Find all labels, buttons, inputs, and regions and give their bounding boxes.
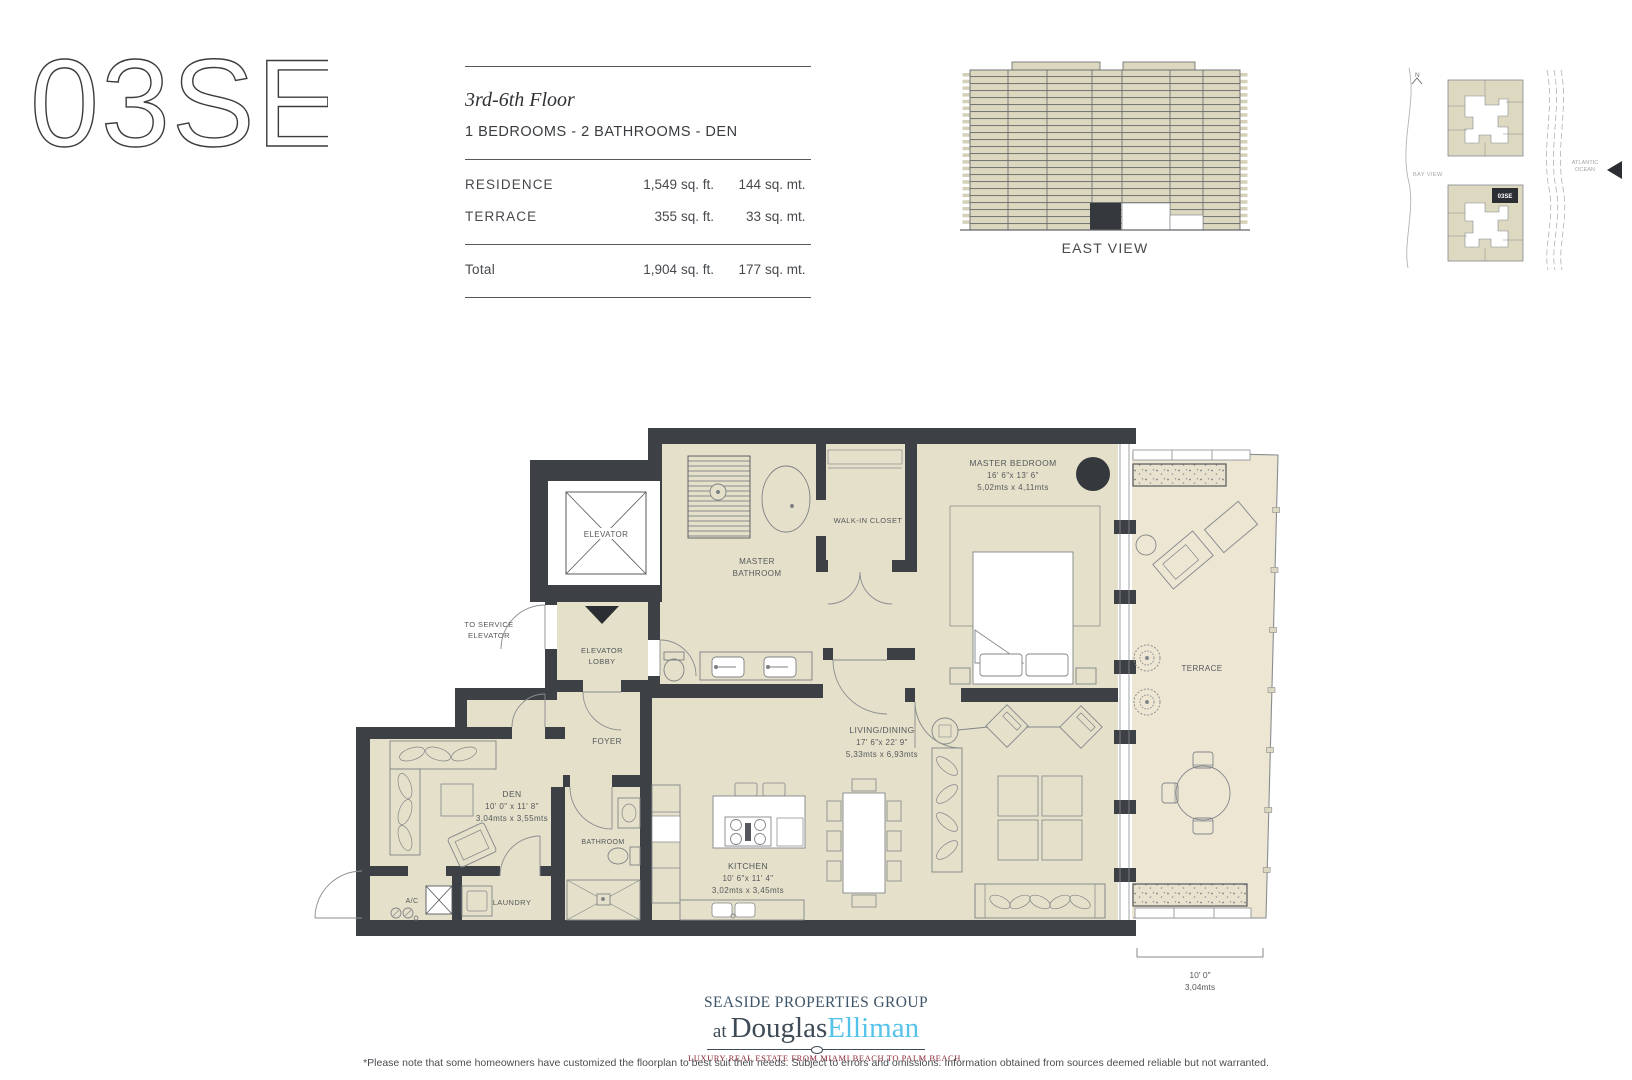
- terrace-dim-imperial: 10' 0": [1189, 970, 1210, 980]
- master-bedroom-dim-imperial: 16' 6"x 13' 6": [987, 471, 1039, 480]
- pillow-icon: [1026, 654, 1068, 676]
- laundry-label: LAUNDRY: [493, 898, 532, 907]
- brand-at: at: [713, 1021, 727, 1042]
- planter-icon: [1133, 464, 1226, 486]
- master-bathroom-label-2: BATHROOM: [733, 569, 782, 578]
- fridge-icon: [652, 816, 680, 842]
- elevator-lobby-label-2: LOBBY: [588, 657, 615, 666]
- elevator-lobby-label-1: ELEVATOR: [581, 646, 623, 655]
- to-service-label-1: TO SERVICE: [464, 620, 513, 629]
- terrace-rail: [1135, 908, 1251, 918]
- planter-icon: [1133, 884, 1247, 906]
- living-dining-dim-imperial: 17' 6"x 22' 9": [856, 738, 908, 747]
- den-label: DEN: [502, 789, 521, 799]
- ac-label: A/C: [406, 898, 419, 905]
- master-bathroom-label-1: MASTER: [739, 557, 775, 566]
- foyer-label: FOYER: [592, 737, 622, 746]
- den-dim-imperial: 10' 0" x 11' 8": [485, 802, 539, 811]
- bathtub-icon: [762, 466, 810, 532]
- terrace-dim-metric: 3,04mts: [1185, 982, 1215, 992]
- window-wall: [1120, 444, 1129, 920]
- room-floor-fills: [368, 444, 1278, 920]
- to-service-label-2: ELEVATOR: [468, 631, 510, 640]
- bathroom-label: BATHROOM: [581, 839, 624, 846]
- kitchen-dim-imperial: 10' 6"x 11' 4": [722, 874, 773, 883]
- kitchen-label: KITCHEN: [728, 861, 768, 871]
- living-dining-label: LIVING/DINING: [849, 725, 914, 735]
- master-bedroom-label: MASTER BEDROOM: [969, 458, 1056, 468]
- elevator-label: ELEVATOR: [584, 530, 629, 539]
- column-icon: [1076, 457, 1110, 491]
- logo-divider: [707, 1049, 925, 1050]
- kitchen-island-icon: [713, 796, 805, 848]
- den-dim-metric: 3,04mts x 3,55mts: [476, 814, 548, 823]
- terrace-label: TERRACE: [1181, 664, 1222, 673]
- brokerage-name: SEASIDE PROPERTIES GROUP: [688, 994, 944, 1012]
- living-dining-dim-metric: 5,33mts x 6,93mts: [846, 750, 918, 759]
- disclaimer-text: *Please note that some homeowners have c…: [0, 1057, 1632, 1069]
- brand-line: at DouglasElliman: [688, 1013, 944, 1048]
- terrace-rail: [1133, 450, 1250, 460]
- master-bedroom-dim-metric: 5,02mts x 4,11mts: [977, 483, 1049, 492]
- kitchen-sink-icon: [712, 903, 732, 917]
- floorplan-drawing: ELEVATOR: [0, 0, 1632, 1080]
- brand-elliman: Elliman: [827, 1012, 919, 1044]
- brand-douglas: Douglas: [731, 1012, 828, 1044]
- walk-in-closet-label: WALK-IN CLOSET: [834, 516, 903, 525]
- terrace-floor: [1132, 452, 1278, 918]
- pillow-icon: [980, 654, 1022, 676]
- terrace-dimension: 10' 0" 3,04mts: [1137, 948, 1263, 992]
- kitchen-dim-metric: 3,02mts x 3,45mts: [712, 886, 784, 895]
- brokerage-logo: SEASIDE PROPERTIES GROUP at DouglasEllim…: [688, 994, 944, 1063]
